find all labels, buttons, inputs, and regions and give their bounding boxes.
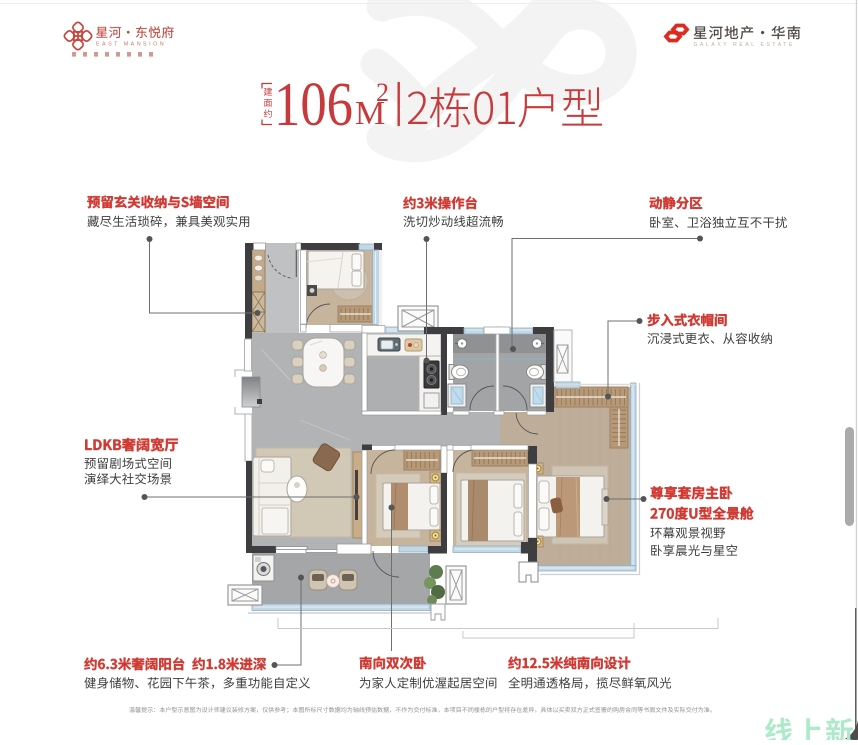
svg-text:EAST MANSION: EAST MANSION — [96, 41, 166, 47]
svg-text:106: 106 — [274, 71, 353, 139]
svg-text:GALAXY REAL ESTATE: GALAXY REAL ESTATE — [694, 42, 795, 48]
svg-text:2: 2 — [376, 78, 389, 107]
